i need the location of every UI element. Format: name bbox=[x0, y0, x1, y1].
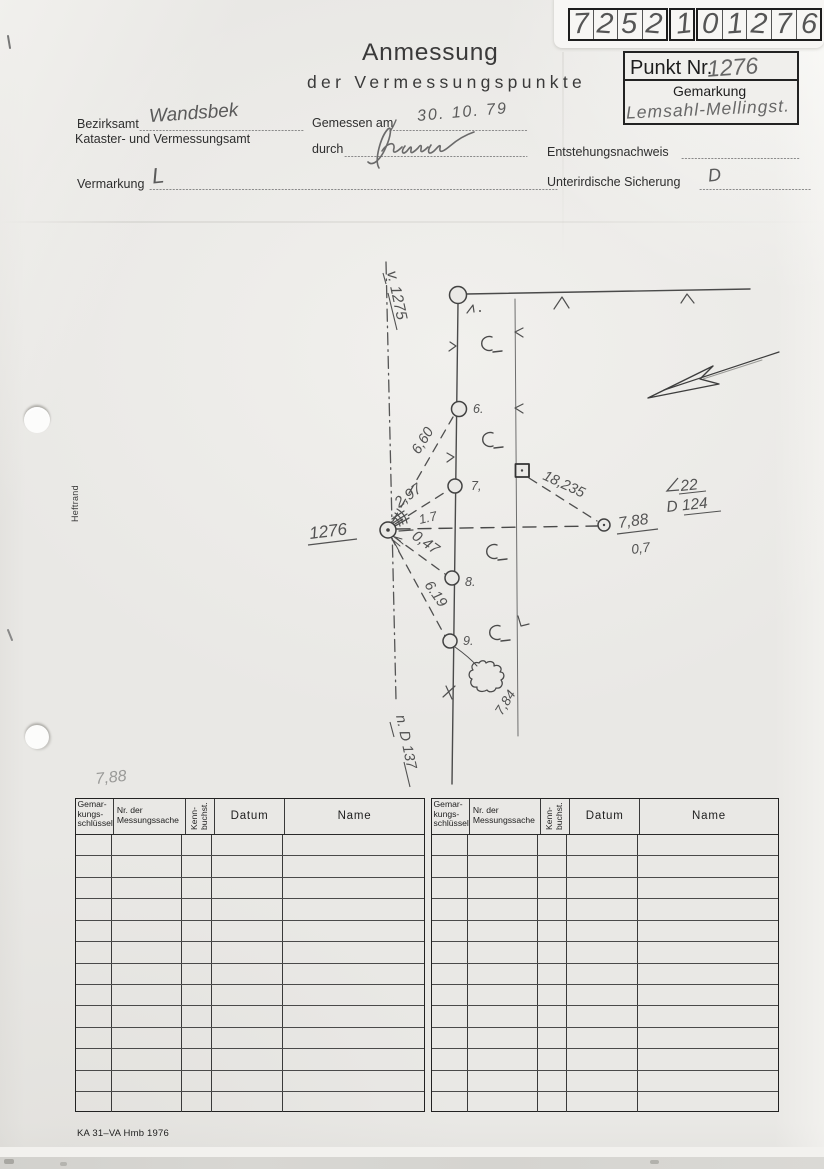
svg-text:7,: 7, bbox=[471, 479, 481, 493]
svg-text:1.7: 1.7 bbox=[417, 508, 439, 527]
svg-text:18,235: 18,235 bbox=[540, 468, 588, 502]
svg-text:7,88: 7,88 bbox=[617, 511, 650, 532]
svg-text:0,7: 0,7 bbox=[630, 539, 651, 557]
svg-text:6.: 6. bbox=[473, 402, 483, 416]
svg-text:7,88: 7,88 bbox=[95, 768, 128, 788]
svg-text:7,84: 7,84 bbox=[492, 687, 519, 717]
svg-text:8.: 8. bbox=[465, 575, 475, 589]
svg-text:2,97: 2,97 bbox=[391, 480, 426, 512]
svg-text:6.19: 6.19 bbox=[421, 578, 450, 610]
svg-text:0,47: 0,47 bbox=[409, 527, 443, 558]
svg-text:1276: 1276 bbox=[308, 519, 348, 543]
svg-text:n. D 137: n. D 137 bbox=[392, 714, 419, 772]
svg-text:9.: 9. bbox=[463, 634, 473, 648]
